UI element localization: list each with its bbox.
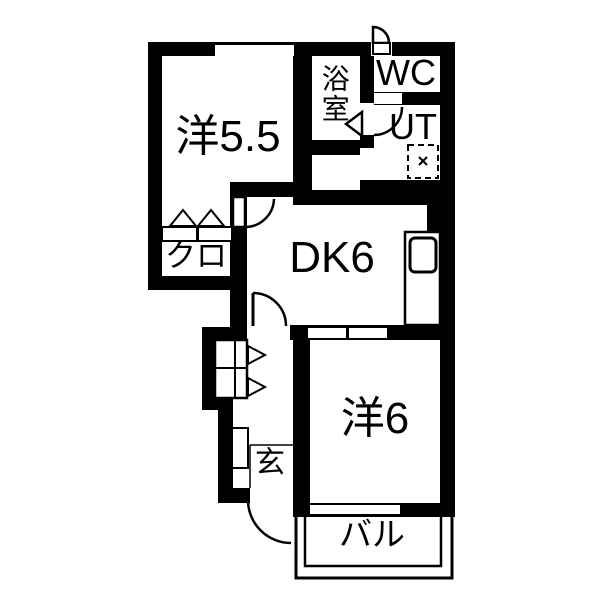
entrance-door-arc xyxy=(248,500,291,543)
label-entrance: 玄 xyxy=(255,447,285,479)
dk-door-arc xyxy=(253,293,286,326)
kitchen-sink xyxy=(410,238,436,272)
label-western-room-6: 洋6 xyxy=(341,396,409,442)
label-utility: UT xyxy=(389,108,437,146)
floor-plan: 洋5.5 浴室 WC UT DK6 クロ 玄 洋6 バル xyxy=(0,0,600,600)
room55-door-leaf xyxy=(233,197,245,227)
label-closet: クロ xyxy=(165,241,227,274)
symbols-layer xyxy=(0,0,600,600)
closet-fold-arrow-1 xyxy=(170,210,196,226)
shoe-cabinet xyxy=(232,428,248,468)
wc-door-arc xyxy=(373,27,389,43)
room55-door-arc xyxy=(245,199,274,227)
label-dining-kitchen: DK6 xyxy=(289,235,375,281)
hall-storage-arrow-1 xyxy=(248,346,265,364)
label-western-room-55: 洋5.5 xyxy=(175,114,280,160)
closet-fold-arrow-2 xyxy=(198,210,224,226)
label-bathroom: 浴室 xyxy=(319,64,348,124)
label-toilet: WC xyxy=(376,54,436,92)
hall-storage-arrow-2 xyxy=(248,378,265,396)
label-balcony: バル xyxy=(339,518,405,553)
